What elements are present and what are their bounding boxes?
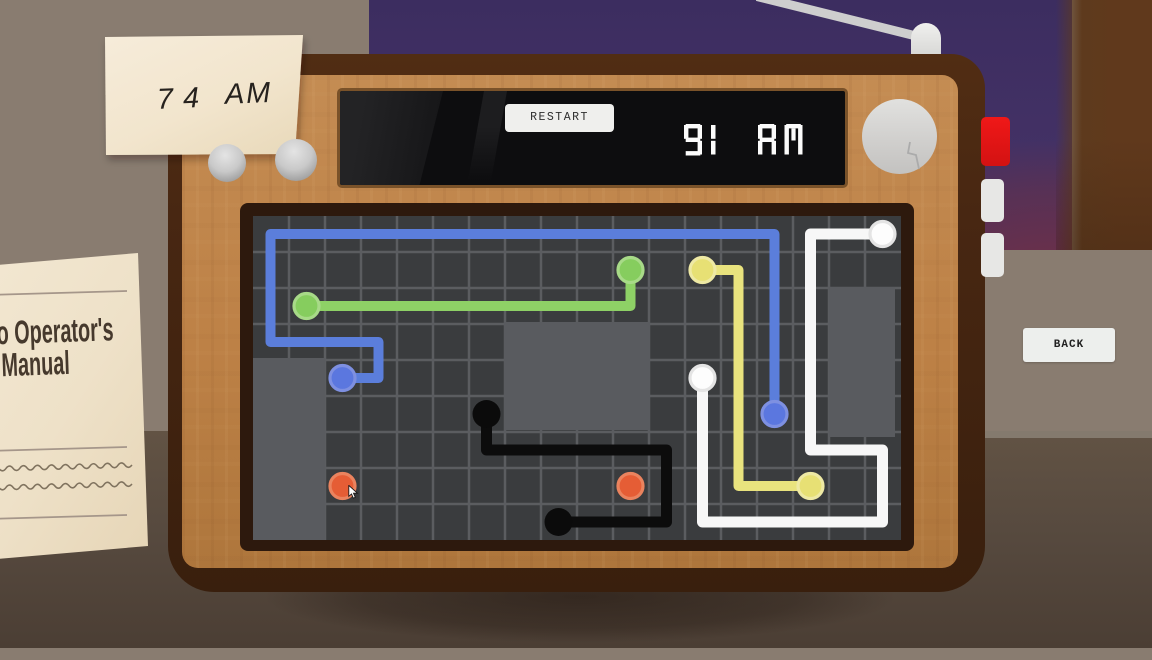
svg-text:4: 4	[182, 82, 202, 115]
svg-text:AM: AM	[222, 77, 273, 111]
svg-text:7: 7	[156, 83, 176, 116]
svg-text:Manual: Manual	[1, 344, 70, 384]
